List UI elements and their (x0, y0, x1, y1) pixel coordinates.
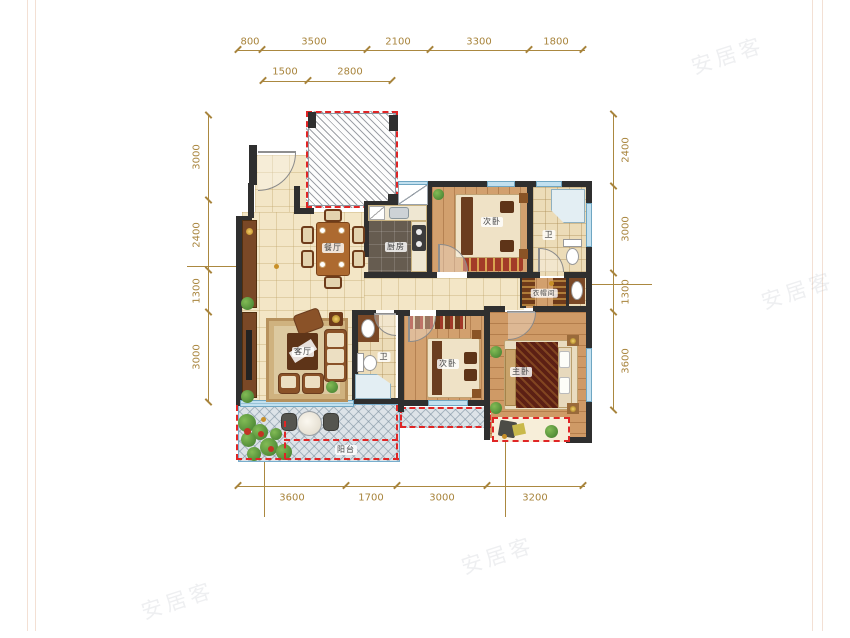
leader-line (505, 440, 506, 517)
plant (241, 297, 254, 310)
pillow (559, 351, 570, 368)
balcony-divider (284, 439, 398, 441)
leader-dot (549, 281, 554, 286)
wall (398, 312, 404, 402)
window (487, 181, 515, 187)
armchair-cushion (305, 376, 320, 388)
plant (545, 425, 558, 438)
dim-line-bottom (236, 486, 585, 487)
nightstand (472, 330, 481, 339)
room-label-closet: 衣帽间 (531, 289, 558, 298)
floorplan-canvas: 安居客 安居客 安居客 安居客 800 3500 2100 3300 1800 … (0, 0, 850, 638)
dining-chair (301, 226, 314, 244)
plant (433, 189, 444, 200)
dim-value: 1300 (192, 278, 203, 303)
plate (319, 261, 326, 268)
dim-value: 3500 (301, 37, 326, 48)
wall (248, 183, 254, 218)
watermark: 安居客 (757, 264, 838, 316)
table-lamp (570, 338, 576, 344)
balcony-table (297, 411, 322, 436)
flower (268, 446, 274, 452)
pillow (500, 201, 514, 213)
dim-line-right (613, 114, 614, 410)
column (308, 112, 316, 128)
cabinet-lamp (246, 228, 253, 235)
sofa-cushion (327, 365, 344, 379)
rug (461, 258, 523, 271)
sofa-cushion (327, 333, 344, 347)
room-label-bath-mid: 卫 (378, 352, 391, 362)
dining-chair (352, 226, 365, 244)
vanity-sink (571, 281, 583, 300)
room-label-living: 客厅 (292, 347, 314, 357)
room-label-kitchen: 厨房 (385, 242, 407, 252)
wall (249, 145, 257, 185)
plant (270, 428, 282, 440)
room-label-bedroom-mid: 次卧 (437, 359, 459, 369)
fridge (369, 206, 385, 220)
wall (294, 208, 314, 214)
balcony-chair (323, 413, 339, 431)
burner (416, 229, 422, 235)
watermark: 安居客 (457, 529, 538, 581)
dim-line-top (236, 50, 585, 51)
watermark: 安居客 (137, 574, 218, 626)
pillow (464, 369, 477, 381)
plate (319, 227, 326, 234)
table-lamp (332, 315, 340, 323)
window (536, 181, 562, 187)
flower (244, 428, 251, 435)
tick (388, 77, 396, 85)
sofa-cushion (327, 349, 344, 363)
flower (258, 431, 264, 437)
dim-line-left (208, 115, 209, 402)
dim-value: 3200 (522, 493, 547, 504)
room-label-bedroom-top: 次卧 (481, 217, 503, 227)
balcony-rail (236, 405, 238, 460)
dim-value: 2100 (385, 37, 410, 48)
plant (490, 402, 502, 414)
toilet-bowl (363, 355, 377, 371)
dining-chair (301, 250, 314, 268)
dim-value: 1700 (358, 493, 383, 504)
kitchen-sink (389, 207, 409, 219)
balcony-rail (236, 458, 399, 460)
frame-line-left-inner (35, 0, 36, 631)
leader-dot (502, 434, 507, 439)
column (389, 115, 398, 131)
dim-value: 3000 (192, 144, 203, 169)
dining-chair (324, 276, 342, 289)
armchair-cushion (281, 376, 296, 388)
plate (338, 227, 345, 234)
window (428, 400, 468, 406)
dim-value: 2400 (621, 137, 632, 162)
table-lamp (570, 406, 576, 412)
ac-platform (400, 407, 491, 428)
wall (533, 306, 586, 312)
plant (326, 381, 338, 393)
dining-chair (352, 250, 365, 268)
pillow (500, 240, 514, 252)
bed-bench (505, 349, 516, 406)
plant (490, 346, 502, 358)
frame-line-left-outer (27, 0, 28, 631)
leader-dot (261, 417, 266, 422)
window (586, 348, 592, 402)
dim-value: 3300 (466, 37, 491, 48)
vanity-sink (361, 319, 375, 338)
watermark: 安居客 (687, 29, 768, 81)
wall (398, 402, 404, 412)
bed-runner (461, 197, 473, 255)
kitchen-window-box (398, 184, 428, 205)
nightstand (472, 389, 481, 398)
wall (364, 272, 437, 278)
pillow (464, 352, 477, 364)
wall (484, 310, 490, 440)
dim-value: 3600 (279, 493, 304, 504)
dim-line-top2 (263, 81, 392, 82)
dim-value: 2400 (192, 222, 203, 247)
balcony-rail (396, 405, 398, 459)
tick (579, 482, 587, 490)
tick (579, 46, 587, 54)
room-label-dining: 餐厅 (322, 243, 344, 253)
window (586, 203, 592, 247)
tv (246, 330, 252, 380)
room-label-balcony: 阳台 (335, 445, 357, 455)
window (398, 181, 428, 185)
dining-chair (324, 209, 342, 222)
nightstand (519, 193, 528, 203)
dim-value: 3000 (429, 493, 454, 504)
pillow (559, 377, 570, 394)
dim-value: 800 (240, 37, 259, 48)
dim-value: 1500 (272, 67, 297, 78)
plant (241, 390, 254, 403)
toilet-bowl (566, 248, 579, 265)
dim-value: 1800 (543, 37, 568, 48)
room-label-bath-top: 卫 (543, 230, 556, 240)
dim-value: 3000 (621, 216, 632, 241)
plate (338, 261, 345, 268)
burner (416, 241, 422, 247)
void-shaft (306, 111, 398, 208)
dim-value: 2800 (337, 67, 362, 78)
dim-value: 3600 (621, 348, 632, 373)
toilet (563, 239, 582, 247)
frame-line-right-inner (812, 0, 813, 631)
frame-line-right-outer (822, 0, 823, 631)
room-label-master: 主卧 (510, 367, 532, 377)
dim-value: 3000 (192, 344, 203, 369)
leader-dot (274, 264, 279, 269)
